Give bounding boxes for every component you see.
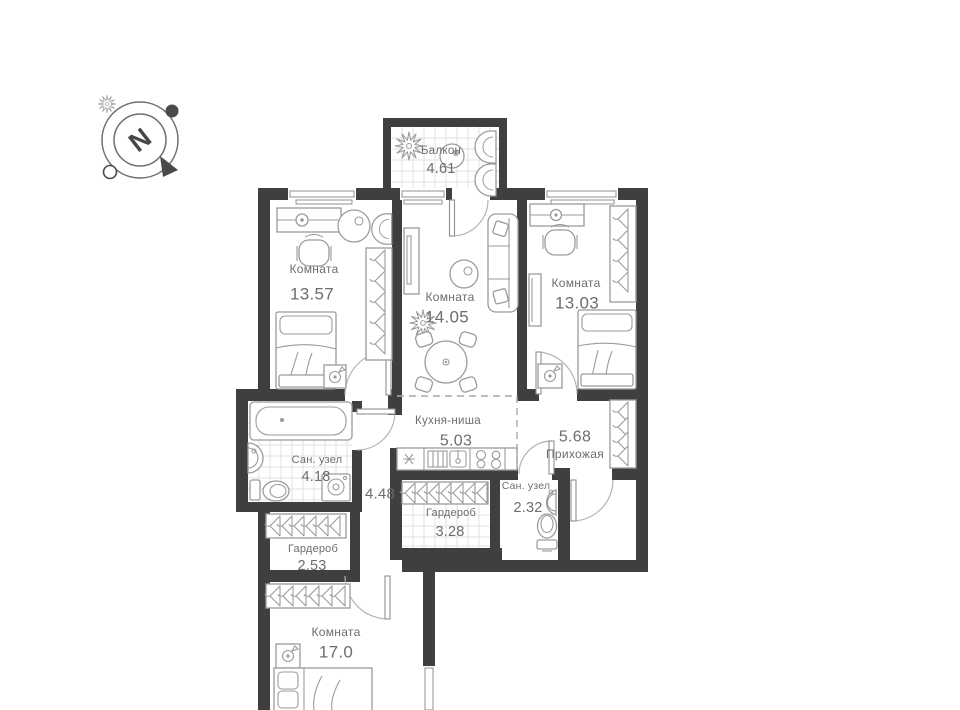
- living-label: Комната: [425, 290, 474, 304]
- bedroom1-label: Комната: [289, 262, 338, 276]
- toilet-icon: [250, 480, 289, 501]
- compass-sun-icon: [98, 95, 115, 112]
- wall-segment: [577, 389, 648, 401]
- compass-open-circle-icon: [104, 166, 117, 179]
- wall-segment: [390, 470, 500, 480]
- wall-segment: [383, 118, 507, 127]
- nightstand-icon: [538, 364, 562, 388]
- bathroom1-area: 4.18: [301, 469, 330, 485]
- compass-arrow-icon: [160, 156, 178, 177]
- hallway-area: 5.68: [559, 429, 591, 446]
- plant-icon: [395, 132, 423, 160]
- sink-icon: [547, 490, 556, 515]
- bathroom2-label: Сан. узел: [502, 480, 551, 492]
- nightstand-icon: [324, 365, 346, 388]
- balcony-area: 4.61: [426, 161, 455, 177]
- bathroom1-label: Сан. узел: [292, 454, 343, 466]
- wardrobe1-rack: [400, 482, 488, 504]
- bathtub-icon: [250, 402, 352, 440]
- kitchen-counter: [397, 448, 517, 470]
- bedroom2-label: Комната: [551, 276, 600, 290]
- wall-segment: [423, 560, 435, 666]
- desk-chair-icon: [543, 225, 577, 256]
- hanger-rack-icon: [265, 584, 350, 608]
- window: [425, 668, 433, 710]
- floor-plan: N: [0, 0, 960, 710]
- wall-segment: [490, 188, 545, 200]
- wardrobe1-label: Гардероб: [426, 507, 476, 519]
- wall-segment: [636, 188, 648, 572]
- bedroom1-area: 13.57: [290, 285, 334, 304]
- compass-dot-icon: [166, 105, 179, 118]
- balcony-label: Балкон: [421, 145, 461, 157]
- wall-segment: [392, 200, 402, 389]
- hanger-rack-icon: [366, 248, 392, 360]
- wall-segment: [558, 468, 570, 560]
- window: [547, 191, 616, 204]
- desk-icon: [530, 204, 584, 226]
- bathroom2-area: 2.32: [513, 500, 542, 516]
- wall-segment: [612, 468, 636, 480]
- coffee-table-icon: [450, 260, 478, 288]
- wardrobe2-rack: [265, 514, 346, 538]
- desk-icon: [277, 208, 341, 232]
- bed-icon: [274, 668, 372, 710]
- tv-cabinet-icon: [404, 228, 419, 294]
- hallway-label: Прихожая: [546, 447, 604, 461]
- wall-segment: [383, 118, 391, 196]
- chair-icon: [372, 214, 392, 244]
- balcony-chair-icon: [475, 131, 496, 163]
- window: [402, 191, 444, 204]
- wall-segment: [258, 188, 270, 401]
- wall-segment: [350, 502, 360, 580]
- wall-segment: [236, 502, 362, 512]
- window: [290, 191, 354, 204]
- wardrobe2-label: Гардероб: [288, 543, 338, 555]
- floor-plan-page: N: [0, 0, 960, 710]
- wall-segment: [490, 468, 500, 560]
- wall-segment: [356, 188, 400, 200]
- door-bathroom1: [357, 409, 395, 450]
- toilet-icon: [537, 514, 557, 551]
- shelf-icon: [529, 274, 541, 326]
- sink-icon: [248, 443, 263, 473]
- sofa-icon: [488, 214, 518, 312]
- door-entrance: [571, 480, 613, 521]
- compass-icon: N: [98, 95, 178, 178]
- side-table-icon: [338, 210, 370, 242]
- bedroom2-area: 13.03: [555, 294, 599, 313]
- bedroom3-label: Комната: [311, 625, 360, 639]
- hallway-rack: [610, 400, 636, 468]
- nightstand-icon: [276, 644, 300, 668]
- hanger-rack-icon: [610, 206, 636, 302]
- kitchen-area: 5.03: [440, 433, 472, 450]
- wall-segment: [446, 188, 452, 200]
- door-balcony: [450, 200, 489, 236]
- living-area: 14.05: [425, 308, 469, 327]
- dining-table-icon: [414, 331, 478, 393]
- balcony-chair-icon: [475, 164, 496, 196]
- wall-segment: [236, 389, 345, 401]
- door-bedroom3: [345, 576, 390, 619]
- wardrobe1-area: 3.28: [435, 524, 464, 540]
- wall-segment: [402, 560, 648, 572]
- corridor-area: 4.48: [365, 486, 395, 503]
- wall-segment: [499, 118, 507, 196]
- wardrobe2-area: 2.53: [297, 558, 326, 574]
- wall-segment: [390, 548, 502, 560]
- wall-segment: [236, 389, 248, 512]
- bedroom3-area: 17.0: [319, 643, 353, 662]
- bed-icon: [578, 310, 636, 389]
- kitchen-label: Кухня-ниша: [415, 415, 481, 427]
